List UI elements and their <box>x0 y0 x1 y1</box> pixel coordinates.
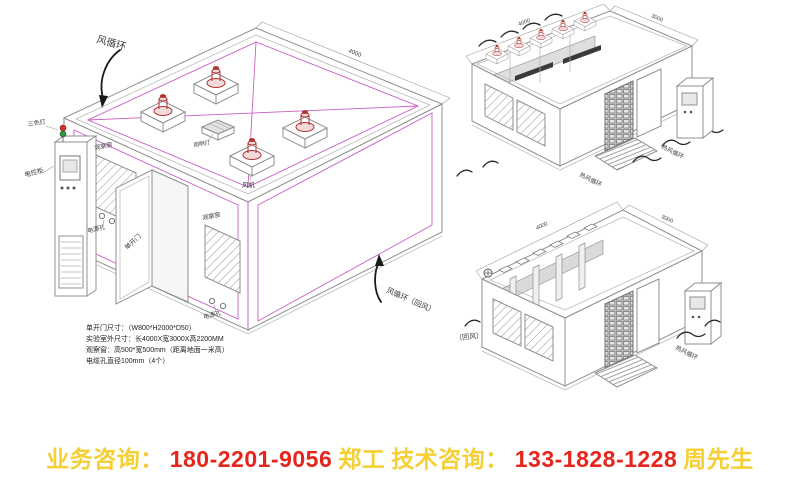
spec-notes: 单开门尺寸：（W800*H2000*D50） 实验室外尺寸：长4000X宽300… <box>86 323 229 365</box>
promo-drawing-page: 4000 风循环 三色灯 电控柜 观察窗 电源孔 单开门 观察窗 电源孔 风机 … <box>0 0 800 496</box>
cabinet-button <box>67 187 70 190</box>
cabinet-button <box>73 187 76 190</box>
business-contact-name: 郑工 <box>338 446 385 472</box>
return-air-label: （回风） <box>455 332 483 343</box>
flow-top-label: 风循环 <box>95 32 127 53</box>
fan-label: 风机 <box>242 180 256 189</box>
note-line: 电缆孔直径100mm（4个） <box>86 356 169 365</box>
fan-unit <box>508 37 530 56</box>
note-line: 观察窗：高500*宽500mm（距离地面一米高） <box>86 345 229 354</box>
door-panel <box>637 279 659 353</box>
flow-label: 热风循环 <box>660 143 685 161</box>
flow-label: 热风循环 <box>578 171 603 189</box>
fan-unit <box>530 29 552 48</box>
tech-contact-name: 周先生 <box>683 446 754 472</box>
single-door <box>116 170 188 304</box>
tricolor-light-red <box>60 125 66 131</box>
main-isometric-diagram: 4000 风循环 三色灯 电控柜 观察窗 电源孔 单开门 观察窗 电源孔 风机 … <box>0 0 460 432</box>
note-line: 单开门尺寸：（W800*H2000*D50） <box>86 323 196 332</box>
tech-phone: 133-1828-1228 <box>515 446 678 472</box>
tech-consult-label: 技术咨询： <box>391 446 509 472</box>
flow-label: 热风循环 <box>674 344 699 362</box>
power-hole <box>99 213 104 218</box>
cabinet-screen <box>682 93 697 105</box>
cabinet-louver <box>59 236 83 288</box>
partition-panel <box>556 254 562 301</box>
bottom-right-isometric-diagram: 4000 3000 （回风） 热风循环 <box>455 196 800 436</box>
dimension-short: 3000 <box>650 13 664 23</box>
tricolor-light-green <box>60 131 66 137</box>
top-right-isometric-diagram: 4000 3000 热风循环 热风循环 <box>455 4 800 196</box>
power-hole <box>109 218 114 223</box>
cabinet-screen <box>690 297 705 309</box>
cabinet-label: 电控柜 <box>23 165 45 179</box>
business-consult-label: 业务咨询： <box>46 446 164 472</box>
corner-marker <box>484 269 492 277</box>
power-hole <box>220 303 225 308</box>
power-hole <box>209 298 214 303</box>
dimension-long: 4000 <box>535 221 549 232</box>
contact-banner: 业务咨询：180-2201-9056郑工技术咨询：133-1828-1228周先… <box>0 440 800 474</box>
dimension-short: 3000 <box>660 214 674 224</box>
control-cabinet <box>55 125 96 296</box>
mesh-door <box>605 279 659 368</box>
tricolor-light-label: 三色灯 <box>27 118 46 128</box>
control-cabinet <box>677 78 713 138</box>
door-panel <box>637 69 661 137</box>
fan-unit <box>574 12 596 31</box>
partition-panel <box>579 243 585 290</box>
note-line: 实验室外尺寸：长4000X宽3000X高2200MM <box>86 334 224 343</box>
business-phone: 180-2201-9056 <box>170 446 333 472</box>
cabinet-button <box>61 187 64 190</box>
flow-return-label: 风循环（回风） <box>385 285 437 315</box>
fan-unit <box>486 45 508 64</box>
fan-unit <box>552 20 574 39</box>
dimension-long: 4000 <box>518 18 532 28</box>
